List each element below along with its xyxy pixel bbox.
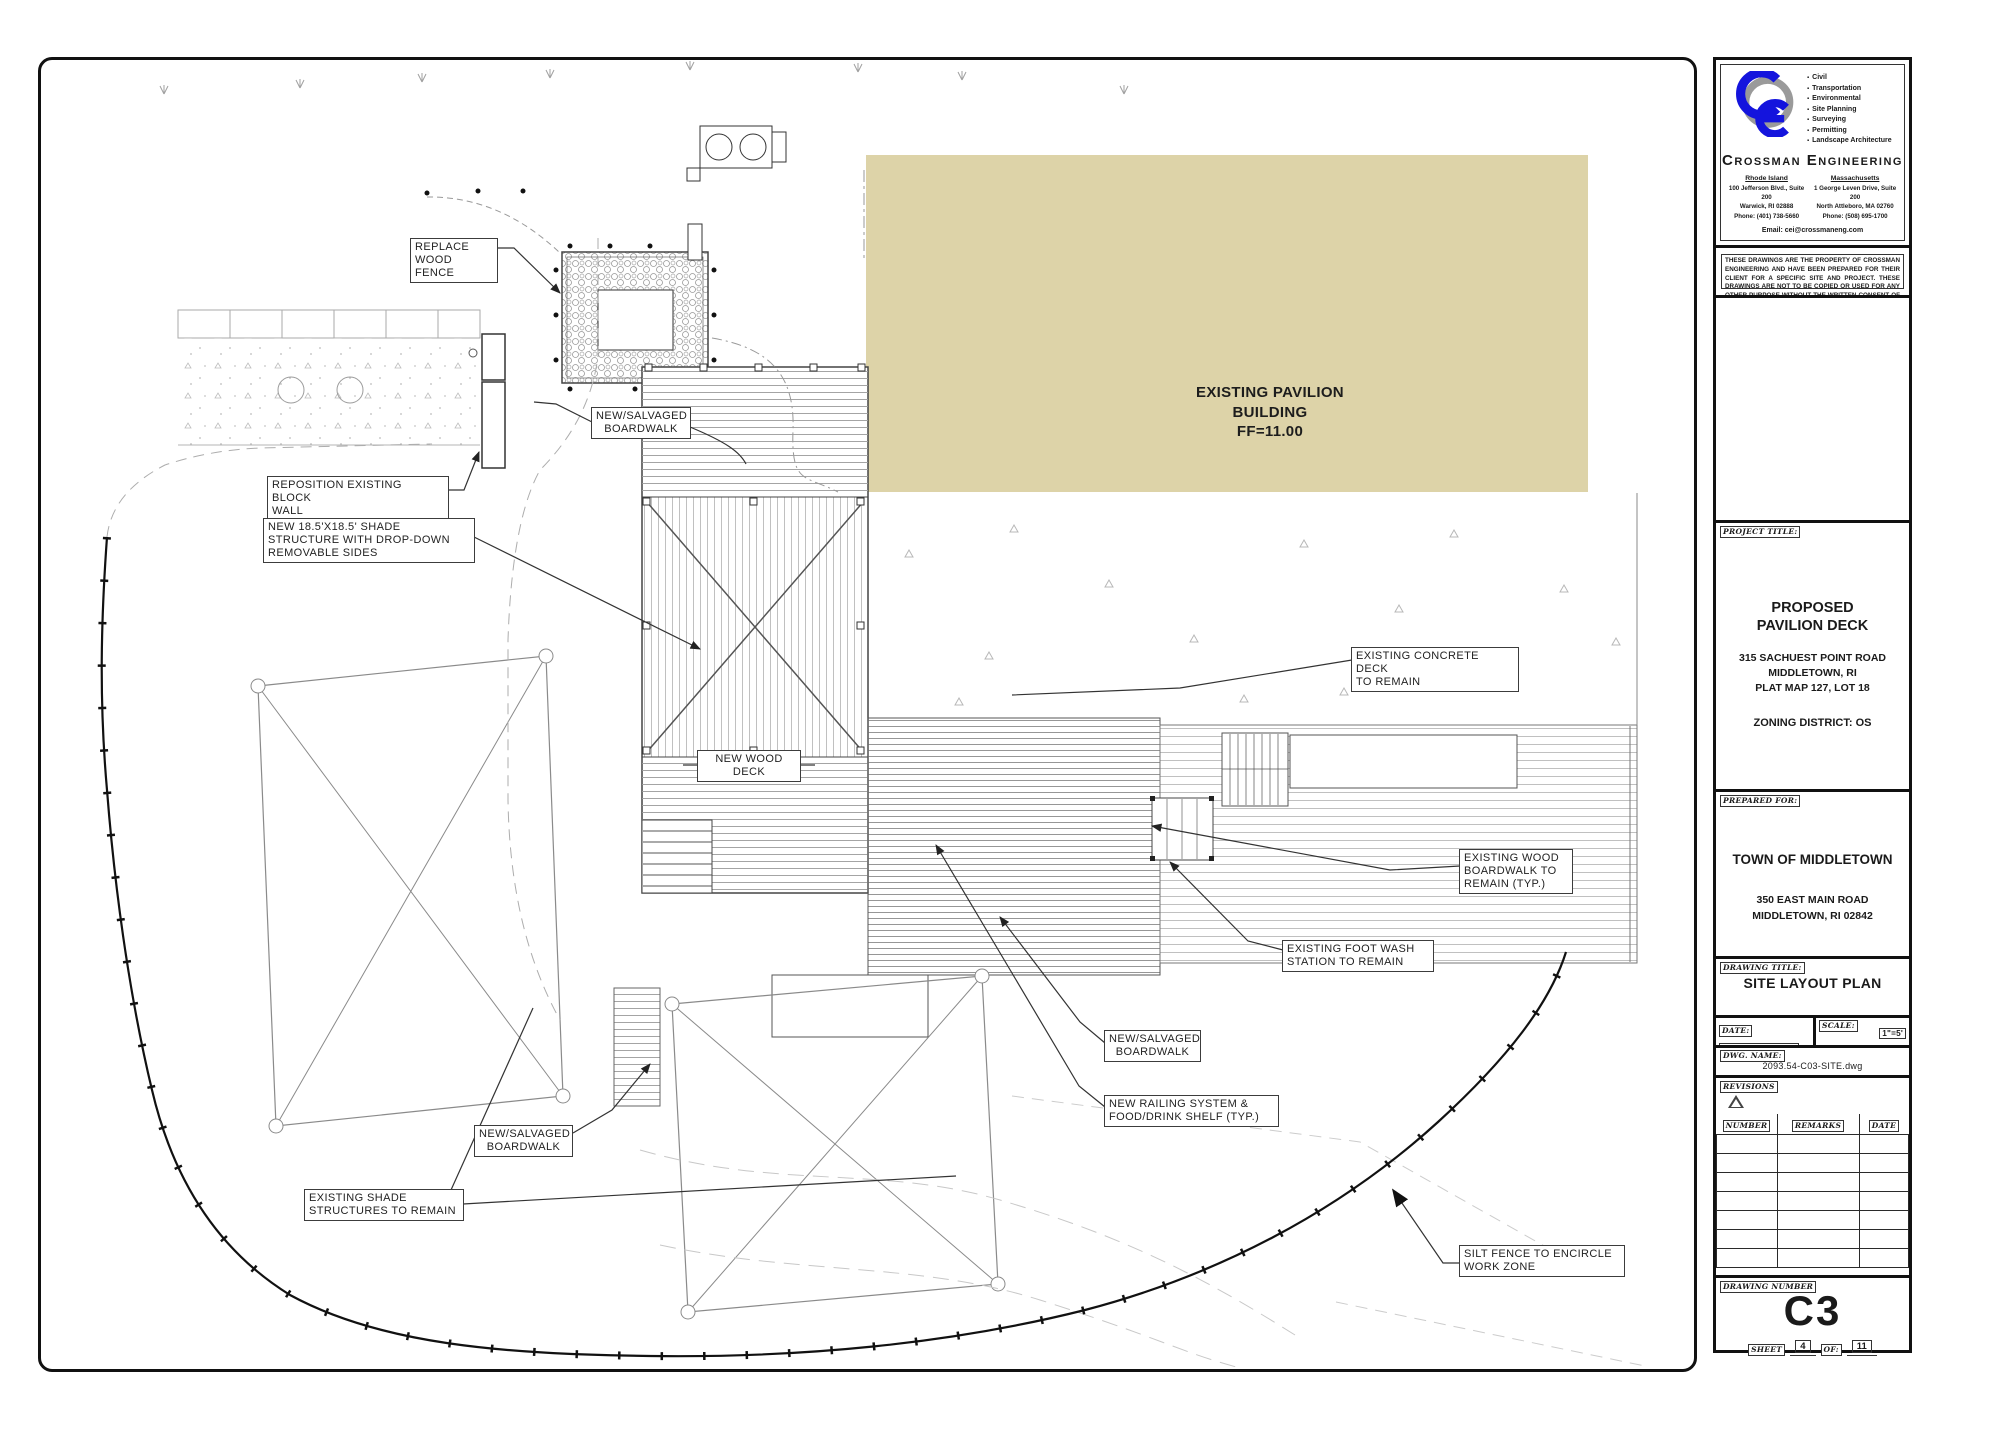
label-new-wood-deck: NEW WOOD DECK: [697, 750, 801, 782]
revision-row: [1717, 1134, 1909, 1153]
project-title-chip: PROJECT TITLE:: [1720, 526, 1800, 538]
new-wood-deck-structure: [642, 364, 868, 893]
drawing-number-section: DRAWING NUMBER C3 SHEET 4 OF: 11: [1716, 1275, 1909, 1356]
label-new-railing-system: NEW RAILING SYSTEM & FOOD/DRINK SHELF (T…: [1104, 1095, 1279, 1127]
company-email: Email: cei@crossmaneng.com: [1721, 227, 1904, 234]
scale-value: 1"=5': [1879, 1028, 1906, 1039]
project-name: PROPOSED PAVILION DECK: [1716, 599, 1909, 635]
label-existing-wood-boardwalk: EXISTING WOOD BOARDWALK TO REMAIN (TYP.): [1459, 849, 1573, 894]
revision-row: [1717, 1172, 1909, 1191]
label-existing-foot-wash: EXISTING FOOT WASH STATION TO REMAIN: [1282, 940, 1434, 972]
revisions-section: REVISIONS NUMBER REMARKS DATE: [1716, 1075, 1909, 1275]
scale-cell: SCALE: 1"=5': [1816, 1018, 1909, 1045]
revision-row: [1717, 1210, 1909, 1229]
label-silt-fence: SILT FENCE TO ENCIRCLE WORK ZONE: [1459, 1245, 1625, 1277]
label-existing-concrete-deck: EXISTING CONCRETE DECK TO REMAIN: [1351, 647, 1519, 692]
label-new-salvaged-boardwalk-top: NEW/SALVAGED BOARDWALK: [591, 407, 691, 439]
prepared-for-chip: PREPARED FOR:: [1720, 795, 1800, 807]
label-replace-wood-fence: REPLACE WOOD FENCE: [410, 238, 498, 283]
prepared-for-section: PREPARED FOR: TOWN OF MIDDLETOWN 350 EAS…: [1716, 789, 1909, 956]
services-list: Civil Transportation Environmental Site …: [1807, 73, 1892, 147]
revisions-table: NUMBER REMARKS DATE: [1716, 1114, 1909, 1268]
title-block: Civil Transportation Environmental Site …: [1713, 57, 1912, 1353]
date-cell: DATE: SEPTEMBER 2025: [1716, 1018, 1816, 1045]
office-massachusetts: Massachusetts 1 George Leven Drive, Suit…: [1809, 174, 1901, 221]
label-reposition-block-wall: REPOSITION EXISTING BLOCK WALL: [267, 476, 449, 521]
drawing-title: SITE LAYOUT PLAN: [1716, 975, 1909, 991]
dwg-name-chip: DWG. NAME:: [1720, 1050, 1785, 1062]
sheet-total: 11: [1852, 1340, 1872, 1353]
sheet-chip: SHEET: [1748, 1344, 1785, 1356]
client-address: 350 EAST MAIN ROAD MIDDLETOWN, RI 02842: [1716, 893, 1909, 925]
col-remarks: REMARKS: [1792, 1120, 1844, 1132]
site-plan-linework: [0, 0, 2000, 1429]
drawing-number: C3: [1716, 1290, 1909, 1332]
existing-shade-structure-left: [251, 649, 570, 1133]
company-header: Civil Transportation Environmental Site …: [1716, 60, 1909, 245]
label-new-shade-structure: NEW 18.5'X18.5' SHADE STRUCTURE WITH DRO…: [263, 518, 475, 563]
dwg-name-value: 2093.54-C03-SITE.dwg: [1716, 1061, 1909, 1071]
zoning-district: ZONING DISTRICT: OS: [1716, 717, 1909, 729]
label-existing-shade-structures: EXISTING SHADE STRUCTURES TO REMAIN: [304, 1189, 464, 1221]
label-existing-pavilion: EXISTING PAVILION BUILDING FF=11.00: [1150, 383, 1390, 442]
drawing-title-section: DRAWING TITLE: SITE LAYOUT PLAN: [1716, 956, 1909, 1015]
disclaimer-text: THESE DRAWINGS ARE THE PROPERTY OF CROSS…: [1721, 254, 1904, 289]
company-name: Crossman Engineering: [1721, 152, 1904, 169]
disclaimer-section: THESE DRAWINGS ARE THE PROPERTY OF CROSS…: [1716, 245, 1909, 295]
revision-row: [1717, 1248, 1909, 1267]
crossman-logo: [1725, 71, 1803, 137]
revision-row: [1717, 1229, 1909, 1248]
label-new-salvaged-boardwalk-left: NEW/SALVAGED BOARDWALK: [474, 1125, 573, 1157]
scale-chip: SCALE:: [1819, 1020, 1858, 1032]
revision-triangle-icon: [1728, 1095, 1744, 1108]
blank-section: [1716, 295, 1909, 520]
label-new-salvaged-boardwalk-right: NEW/SALVAGED BOARDWALK: [1104, 1030, 1201, 1062]
office-rhode-island: Rhode Island 100 Jefferson Blvd., Suite …: [1724, 174, 1809, 221]
date-scale-section: DATE: SEPTEMBER 2025 SCALE: 1"=5': [1716, 1015, 1909, 1045]
project-address: 315 SACHUEST POINT ROAD MIDDLETOWN, RI P…: [1716, 651, 1909, 695]
drawing-title-chip: DRAWING TITLE:: [1720, 962, 1805, 974]
of-chip: OF:: [1821, 1344, 1842, 1356]
revision-row: [1717, 1191, 1909, 1210]
dwg-name-section: DWG. NAME: 2093.54-C03-SITE.dwg: [1716, 1045, 1909, 1075]
date-chip: DATE:: [1719, 1025, 1752, 1037]
col-date: DATE: [1869, 1120, 1899, 1132]
drawing-number-chip: DRAWING NUMBER: [1720, 1281, 1816, 1293]
col-number: NUMBER: [1723, 1120, 1771, 1132]
sheet-number: 4: [1795, 1340, 1810, 1353]
landscape-marks: [160, 61, 1128, 94]
revision-row: [1717, 1153, 1909, 1172]
existing-block-wall-area: [178, 310, 505, 468]
rooftop-unit: [687, 126, 864, 260]
project-title-section: PROJECT TITLE: PROPOSED PAVILION DECK 31…: [1716, 520, 1909, 789]
client-name: TOWN OF MIDDLETOWN: [1716, 852, 1909, 867]
